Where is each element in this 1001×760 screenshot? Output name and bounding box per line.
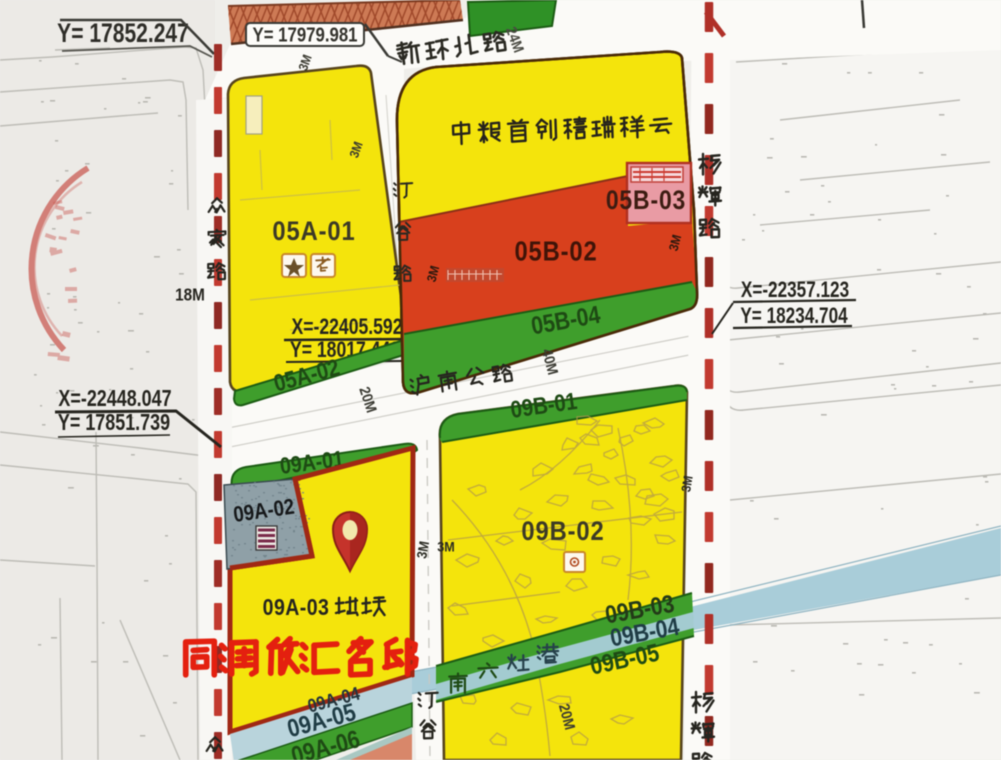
svg-text:Y= 18234.704: Y= 18234.704 <box>740 304 847 329</box>
svg-text:3M: 3M <box>679 475 696 494</box>
svg-text:05B-02: 05B-02 <box>514 235 597 267</box>
svg-text:Y= 17979.981: Y= 17979.981 <box>252 23 357 46</box>
svg-text:X=-22448.047: X=-22448.047 <box>58 386 171 412</box>
svg-text:X=-22357.123: X=-22357.123 <box>741 278 849 303</box>
svg-text:3M: 3M <box>414 540 433 560</box>
svg-text:X=-22405.592: X=-22405.592 <box>292 315 403 339</box>
svg-text:Y= 17851.739: Y= 17851.739 <box>58 410 170 436</box>
svg-text:09B-02: 09B-02 <box>521 517 604 547</box>
svg-text:3M: 3M <box>437 539 454 555</box>
svg-text:Y= 17852.247: Y= 17852.247 <box>57 19 189 49</box>
svg-text:05B-03: 05B-03 <box>606 185 686 215</box>
svg-text:05A-01: 05A-01 <box>272 217 355 247</box>
svg-text:18M: 18M <box>175 285 205 305</box>
svg-text:09A-03: 09A-03 <box>263 595 330 621</box>
